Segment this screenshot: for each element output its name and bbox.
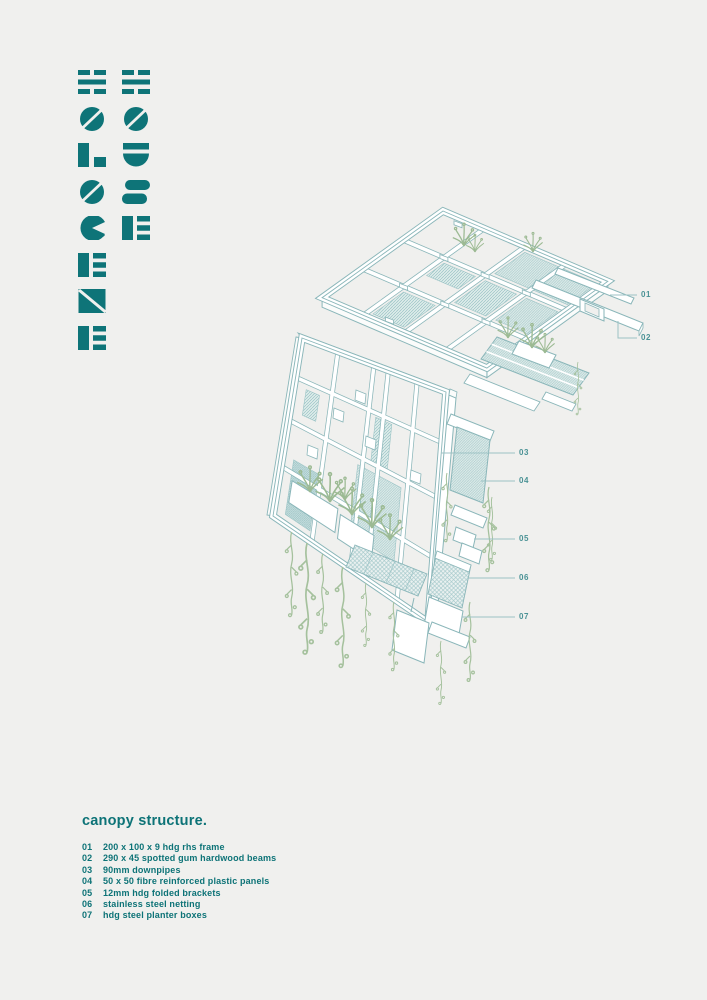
legend-item-number: 07	[82, 910, 103, 921]
legend-row: 05 12mm hdg folded brackets	[82, 888, 276, 899]
wall-frame	[267, 333, 446, 622]
legend-item-number: 03	[82, 865, 103, 876]
callout-label-04: 04	[519, 476, 529, 486]
legend-item-label: hdg steel planter boxes	[103, 910, 207, 921]
legend-item-number: 02	[82, 853, 103, 864]
legend-row: 06 stainless steel netting	[82, 899, 276, 910]
legend-item-number: 04	[82, 876, 103, 887]
callout-label-06: 06	[519, 573, 529, 583]
legend-row: 07 hdg steel planter boxes	[82, 910, 276, 921]
legend-item-label: 200 x 100 x 9 hdg rhs frame	[103, 842, 225, 853]
legend-row: 01 200 x 100 x 9 hdg rhs frame	[82, 842, 276, 853]
legend-items: 01 200 x 100 x 9 hdg rhs frame 02 290 x …	[82, 842, 276, 922]
legend-item-label: 12mm hdg folded brackets	[103, 888, 221, 899]
legend-item-label: stainless steel netting	[103, 899, 200, 910]
legend-row: 04 50 x 50 fibre reinforced plastic pane…	[82, 876, 276, 887]
legend-item-number: 01	[82, 842, 103, 853]
legend-title: canopy structure.	[82, 813, 276, 829]
callout-label-01: 01	[641, 290, 651, 300]
callout-label-03: 03	[519, 448, 529, 458]
legend-item-label: 290 x 45 spotted gum hardwood beams	[103, 853, 276, 864]
legend-row: 02 290 x 45 spotted gum hardwood beams	[82, 853, 276, 864]
legend-row: 03 90mm downpipes	[82, 865, 276, 876]
legend-item-label: 90mm downpipes	[103, 865, 181, 876]
legend-item-number: 06	[82, 899, 103, 910]
legend: canopy structure. 01 200 x 100 x 9 hdg r…	[82, 813, 276, 922]
callout-label-02: 02	[641, 333, 651, 343]
legend-item-number: 05	[82, 888, 103, 899]
callout-label-07: 07	[519, 612, 529, 622]
callout-label-05: 05	[519, 534, 529, 544]
poster: 01 02 03 04 05 06 07 canopy structure. 0…	[0, 0, 707, 1000]
legend-item-label: 50 x 50 fibre reinforced plastic panels	[103, 876, 269, 887]
